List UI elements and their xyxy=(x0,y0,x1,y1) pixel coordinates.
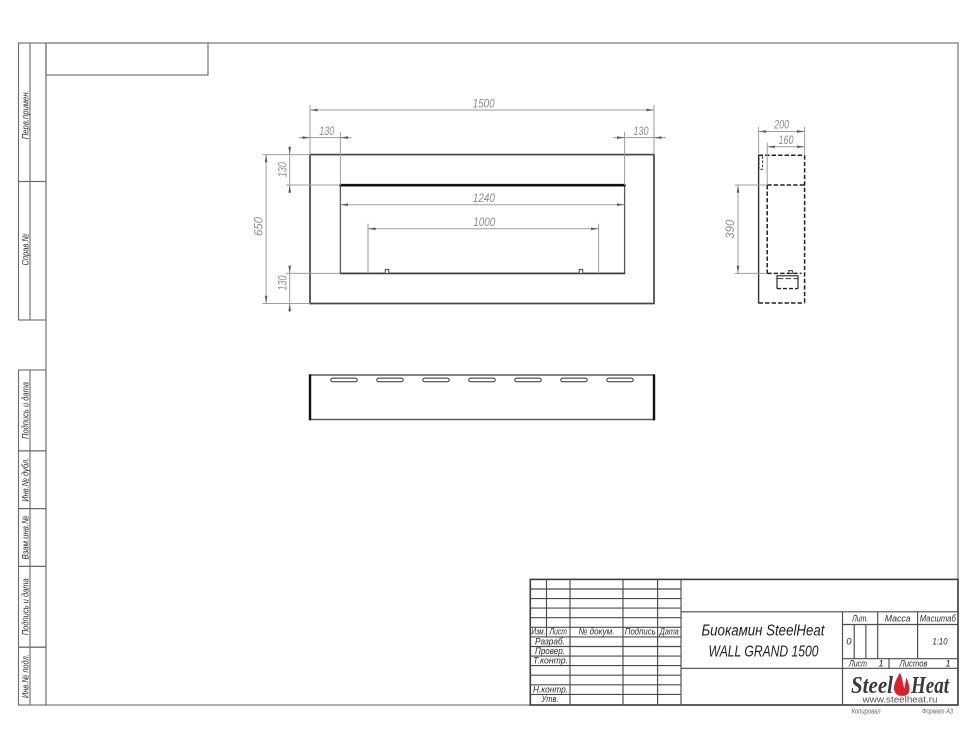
svg-text:130: 130 xyxy=(275,275,289,290)
svg-text:Копировал: Копировал xyxy=(852,707,882,716)
svg-text:130: 130 xyxy=(634,124,649,138)
svg-text:Инв.№ подл.: Инв.№ подл. xyxy=(20,654,31,698)
svg-text:Масса: Масса xyxy=(885,614,911,625)
svg-text:Формат А3: Формат А3 xyxy=(922,707,954,716)
svg-text:www.steelheat.ru: www.steelheat.ru xyxy=(861,695,937,706)
svg-text:WALL GRAND 1500: WALL GRAND 1500 xyxy=(709,644,819,661)
svg-text:1500: 1500 xyxy=(473,97,495,111)
svg-text:Справ.№: Справ.№ xyxy=(20,234,31,266)
svg-text:№ докум.: № докум. xyxy=(579,627,615,638)
svg-text:Биокамин SteelHeat: Биокамин SteelHeat xyxy=(702,622,826,639)
svg-text:Инв.№ дубл.: Инв.№ дубл. xyxy=(20,458,31,502)
svg-text:1: 1 xyxy=(878,658,883,669)
svg-text:130: 130 xyxy=(319,124,334,138)
svg-text:Подпись: Подпись xyxy=(625,627,656,638)
svg-text:Подпись и дата: Подпись и дата xyxy=(20,578,31,635)
svg-text:390: 390 xyxy=(723,219,737,238)
svg-text:Утв.: Утв. xyxy=(541,694,559,705)
svg-text:Перв.примен.: Перв.примен. xyxy=(20,90,31,139)
svg-text:Взам.инв.№: Взам.инв.№ xyxy=(20,516,31,560)
svg-text:Масштаб: Масштаб xyxy=(920,614,957,625)
svg-text:Листов: Листов xyxy=(899,658,928,669)
svg-text:Лист: Лист xyxy=(848,658,867,669)
svg-text:1: 1 xyxy=(945,658,950,669)
svg-text:1:10: 1:10 xyxy=(933,637,949,648)
svg-text:Лит.: Лит. xyxy=(851,614,868,625)
svg-text:Т.контр.: Т.контр. xyxy=(533,656,568,667)
svg-text:Подпись и дата: Подпись и дата xyxy=(20,382,31,439)
svg-text:160: 160 xyxy=(779,133,794,147)
svg-text:200: 200 xyxy=(773,118,789,132)
svg-text:Дата: Дата xyxy=(659,627,679,638)
svg-text:1240: 1240 xyxy=(473,191,495,205)
svg-text:650: 650 xyxy=(252,217,266,236)
svg-text:130: 130 xyxy=(275,162,289,177)
svg-text:0: 0 xyxy=(846,637,852,648)
svg-text:1000: 1000 xyxy=(473,215,495,229)
